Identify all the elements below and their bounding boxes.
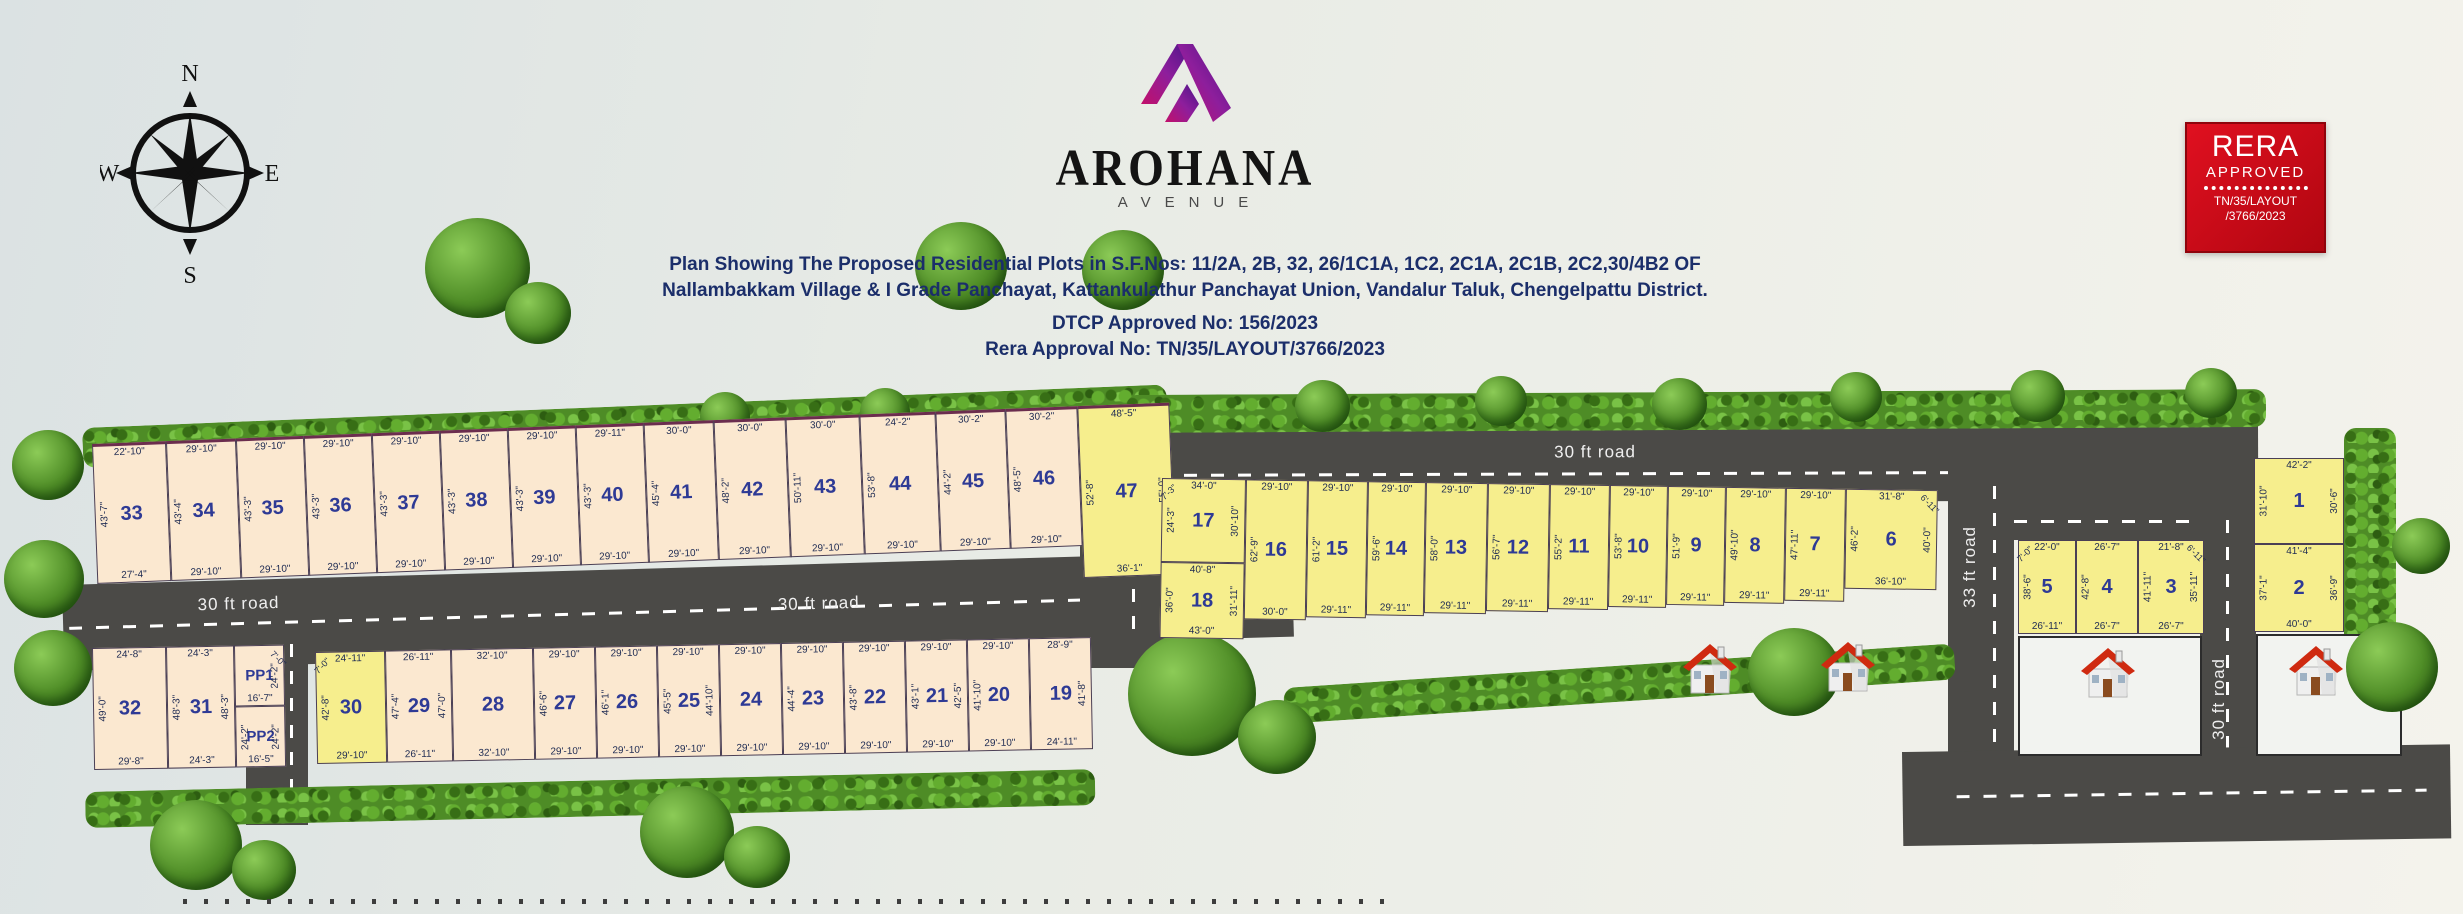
plot-number: 42 xyxy=(741,478,764,502)
plot-dim-top: 29'-10" xyxy=(658,646,718,658)
plot-dim-corner: 6'-11" xyxy=(1918,493,1941,516)
plot-dim-top: 24'-2" xyxy=(861,416,935,430)
plot: 24'-2" PP1 16'-7" 7'-0" xyxy=(234,645,285,707)
plot-dim-top: 41'-4" xyxy=(2255,546,2343,557)
dtcp-approval: DTCP Approved No: 156/2023 xyxy=(640,313,1730,335)
plan-title-line1: Plan Showing The Proposed Residential Pl… xyxy=(640,252,1730,278)
compass-w-label: W xyxy=(100,161,120,187)
plot-dim-bottom: 29'-10" xyxy=(722,742,782,754)
plot-dim-left: 53'-8" xyxy=(1613,533,1624,559)
plot-dim-left: 43'-7" xyxy=(99,502,111,528)
plot-dim-bottom: 29'-10" xyxy=(719,544,789,558)
plot-dim-top: 29'-10" xyxy=(1669,488,1725,500)
plot-dim-right: 40'-0" xyxy=(1921,527,1932,553)
plot-dim-bottom: 29'-11" xyxy=(1785,588,1843,600)
plot-number: 26 xyxy=(616,690,639,713)
plot-dim-bottom: 29'-11" xyxy=(1367,602,1423,614)
plot-dim-top: 29'-10" xyxy=(720,645,780,657)
plot: 41'-4" 37'-1" 36'-9" 2 40'-0" xyxy=(2254,544,2344,632)
plot: 29'-10" 55'-2" 11 29'-11" xyxy=(1548,484,1610,610)
plot-dim-left: 24'-3" xyxy=(1166,507,1177,533)
plot-dim-left: 62'-9" xyxy=(1249,537,1260,563)
plot-dim-top: 29'-10" xyxy=(782,644,842,656)
plot-dim-bottom: 32'-10" xyxy=(454,747,534,760)
plot-dim-right: 44'-10" xyxy=(704,685,716,716)
plot-dim-corner: 6'-11" xyxy=(2184,543,2207,566)
tree-icon xyxy=(1830,372,1882,422)
plot-dim-bottom: 29'-10" xyxy=(598,744,658,756)
plan-title-line2: Nallambakkam Village & I Grade Panchayat… xyxy=(640,278,1730,304)
plot-dim-left: 36'-0" xyxy=(1164,587,1175,613)
tree-icon xyxy=(1128,632,1256,756)
road-cross-right: 33 ft road xyxy=(1948,468,2014,788)
compass-n-label: N xyxy=(181,61,198,87)
plot: 30'-0" 45'-4" 41 29'-10" xyxy=(644,420,719,563)
plot-dim-left: 51'-9" xyxy=(1671,533,1682,559)
plot-dim-left: 61'-2" xyxy=(1311,536,1322,562)
plot-number: 1 xyxy=(2293,490,2304,513)
plot-number: 38 xyxy=(465,488,488,512)
plot: 24'-2" 53'-8" 44 29'-10" xyxy=(859,412,940,555)
plot: 30'-2" 48'-5" 46 29'-10" xyxy=(1005,406,1082,549)
plot-dim-bottom: 40'-0" xyxy=(2255,619,2343,630)
plot-block-5-4-3: 22'-0" 38'-6" 5 26'-11" 7'-0" 26'-7" 42'… xyxy=(2018,540,2204,634)
tree-icon xyxy=(640,786,734,878)
rera-approved-badge: RERA APPROVED TN/35/LAYOUT /3766/2023 xyxy=(2185,122,2326,253)
plot-dim-bottom: 29'-11" xyxy=(1307,604,1365,616)
plot-number: 12 xyxy=(1507,536,1530,559)
plot-number: 25 xyxy=(678,689,701,712)
plot-dim-top: 30'-2" xyxy=(1006,410,1076,424)
boundary-dotted-line xyxy=(183,899,1395,904)
tree-icon xyxy=(1295,380,1350,432)
plot-number: 3 xyxy=(2165,576,2176,599)
plot-dim-left: 41'-10" xyxy=(972,680,984,711)
road-dash xyxy=(2226,520,2229,782)
plot-dim-bottom: 16'-7" xyxy=(236,693,284,705)
plot-number: 36 xyxy=(329,494,352,518)
plot-dim-left: 37'-1" xyxy=(2259,575,2270,600)
plot: 24'-11" 42'-8" 30 29'-10" 7'-0" xyxy=(315,651,387,764)
plot-dim-left: 47'-11" xyxy=(1789,529,1800,559)
road-dash xyxy=(1957,789,2427,799)
tree-icon xyxy=(2010,370,2065,422)
plot: 29'-10" 43'-3" 37 29'-10" xyxy=(372,431,445,574)
road-right-vertical: 30 ft road xyxy=(2200,468,2256,788)
plot-dim-top: 29'-10" xyxy=(167,443,235,457)
hedge-bottom xyxy=(85,769,1096,828)
plot: 29'-10" 43'-4" 34 29'-10" xyxy=(166,438,241,581)
plot-number: 28 xyxy=(482,693,505,716)
plot: 34'-0" 24'-3" 30'-10" 17 7'-3" xyxy=(1161,478,1246,563)
plot-dim-top: 29'-10" xyxy=(237,440,303,454)
plot: 29'-10" 61'-2" 15 29'-11" xyxy=(1306,480,1368,618)
plot-dim-bottom: 29'-11" xyxy=(1425,600,1485,612)
plot-number: 39 xyxy=(533,486,556,510)
plot-dim-left: 49'-10" xyxy=(1729,529,1740,560)
plot-dim-left: 42'-8" xyxy=(2081,574,2092,599)
plot-dim-left: 45'-5" xyxy=(662,688,673,714)
plot: 29'-10" 43'-3" 36 29'-10" xyxy=(304,433,377,576)
plot-dim-bottom: 29'-10" xyxy=(242,563,308,577)
plot-dim-bottom: 29'-11" xyxy=(1487,598,1547,610)
plot-number: 2 xyxy=(2293,577,2304,600)
plot-dim-left: 46'-1" xyxy=(600,690,611,716)
plot-dim-left: 43'-3" xyxy=(514,486,526,512)
plot: 29'-10" 47'-11" 7 29'-11" xyxy=(1784,488,1846,602)
plot: 22'-0" 38'-6" 5 26'-11" 7'-0" xyxy=(2018,540,2076,634)
badge-title: RERA xyxy=(2187,130,2324,164)
plot-dim-right: 36'-9" xyxy=(2329,575,2340,600)
plot: 42'-2" 31'-10" 30'-6" 1 xyxy=(2254,458,2344,544)
plot-dim-top: 26'-7" xyxy=(2077,542,2137,553)
plot: 31'-8" 46'-2" 40'-0" 6 36'-10" 6'-11" xyxy=(1844,489,1938,590)
plot-dim-top: 29'-10" xyxy=(1489,485,1549,497)
road-bottom-right xyxy=(1902,744,2451,846)
tree-icon xyxy=(505,282,571,344)
road-dash xyxy=(1993,486,1996,778)
plot-dim-top: 30'-0" xyxy=(787,419,859,433)
plot-dim-left: 47'-4" xyxy=(390,694,401,720)
plot-dim-left: 43'-4" xyxy=(173,499,185,525)
plot-number: 47 xyxy=(1115,479,1138,503)
logo-title: AROHANA xyxy=(1030,141,1340,195)
badge-subtitle: APPROVED xyxy=(2187,164,2324,181)
plot-number: 5 xyxy=(2041,576,2052,599)
plot-dim-bottom: 29'-8" xyxy=(95,756,167,768)
plot-dim-bottom: 16'-5" xyxy=(237,754,285,766)
plot: 29'-10" 46'-1" 26 29'-10" xyxy=(595,645,659,758)
plot-dim-bottom: 29'-10" xyxy=(846,740,906,752)
plot-number: 31 xyxy=(190,695,213,718)
plot-dim-top: 29'-11" xyxy=(577,427,643,441)
plot: 29'-10" 46'-6" 27 29'-10" xyxy=(533,647,597,760)
logo-subtitle: AVENUE xyxy=(1030,194,1340,211)
road-label: 30 ft road xyxy=(197,593,279,615)
plot: 28'-9" 41'-8" 19 24'-11" xyxy=(1029,637,1093,750)
plot-dim-bottom: 29'-10" xyxy=(941,536,1009,550)
tree-icon xyxy=(2185,368,2237,418)
plot-dim-left: 44'-4" xyxy=(786,686,797,712)
plot-dim-top: 28'-9" xyxy=(1030,639,1090,651)
plot-number: 13 xyxy=(1445,536,1468,559)
plot-dim-bottom: 29'-10" xyxy=(660,743,720,755)
plot: 29'-10" 49'-10" 8 29'-11" xyxy=(1724,487,1786,604)
plot-number: 4 xyxy=(2101,576,2112,599)
plot-dim-bottom: 26'-11" xyxy=(2019,621,2075,632)
plot-number: 21 xyxy=(926,684,949,707)
plot-number: 27 xyxy=(554,691,577,714)
plot: 24'-2" 24'-2" PP2 16'-5" xyxy=(235,706,286,768)
plot-block-1-2: 42'-2" 31'-10" 30'-6" 1 41'-4" 37'-1" 36… xyxy=(2254,458,2344,632)
plot-dim-right: 24'-2" xyxy=(270,723,281,749)
badge-ref2: /3766/2023 xyxy=(2187,209,2324,224)
plot-row-32-31: 24'-8" 49'-0" 32 29'-8" 24'-3" 48'-3" 48… xyxy=(92,646,236,770)
plot-dim-top: 48'-5" xyxy=(1078,407,1168,421)
plot-dim-top: 26'-11" xyxy=(386,651,450,663)
plot-dim-top: 40'-8" xyxy=(1161,564,1243,576)
plot-dim-top: 29'-10" xyxy=(1247,481,1307,493)
plot-number: 23 xyxy=(802,687,825,710)
plot-dim-top: 29'-10" xyxy=(1309,482,1367,494)
plot-dim-top: 29'-10" xyxy=(1369,483,1425,495)
plot-dim-top: 32'-10" xyxy=(452,650,532,663)
plot-dim-left: 49'-0" xyxy=(97,696,108,722)
tree-icon xyxy=(1238,700,1316,774)
logo-mark-icon xyxy=(1135,26,1235,144)
plot-block-mid-right: 34'-0" 24'-3" 30'-10" 17 7'-3" 40'-8" 36… xyxy=(1159,478,1937,650)
plot-dim-top: 29'-10" xyxy=(1611,487,1667,499)
plot-number: 41 xyxy=(670,480,693,504)
plot-dim-left: 46'-6" xyxy=(538,691,549,717)
plot-dim-left: 43'-3" xyxy=(446,488,458,514)
plot-dim-bottom: 26'-7" xyxy=(2077,621,2137,632)
plot-dim-left: 59'-6" xyxy=(1371,536,1382,562)
plot: 30'-0" 48'-2" 42 29'-10" xyxy=(714,417,791,560)
plot-dim-left: 50'-11" xyxy=(792,473,804,504)
plot-dim-left: 24'-2" xyxy=(240,724,251,750)
plot-number: 9 xyxy=(1690,534,1701,557)
plot-dim-left: 43'-1" xyxy=(910,684,921,710)
plot-dim-bottom: 29'-11" xyxy=(1667,592,1723,604)
plot-number: 8 xyxy=(1749,534,1760,557)
plot: 29'-10" 53'-8" 10 29'-11" xyxy=(1608,485,1668,608)
plot-number: 15 xyxy=(1326,538,1349,561)
plot-dim-right: 30'-6" xyxy=(2329,488,2340,513)
tree-icon xyxy=(232,840,296,900)
house-icon xyxy=(1678,640,1742,698)
plot: 21'-8" 41'-11" 35'-11" 3 26'-7" 6'-11" xyxy=(2138,540,2204,634)
plot-dim-top: 29'-10" xyxy=(305,437,371,451)
plot-dim-top: 29'-10" xyxy=(906,642,966,654)
plot-dim-left: 43'-3" xyxy=(243,496,255,522)
plot-dim-bottom: 29'-10" xyxy=(865,539,939,553)
plot-dim-right: 30'-10" xyxy=(1230,506,1241,537)
plot-dim-bottom: 29'-10" xyxy=(514,552,580,566)
plot: 29'-10" 24 29'-10" xyxy=(719,643,783,756)
plot-dim-top: 29'-10" xyxy=(1787,490,1845,502)
plot-dim-bottom: 36'-10" xyxy=(1845,576,1935,588)
plot-number: 32 xyxy=(119,697,142,720)
tree-icon xyxy=(12,430,84,500)
plot: 29'-10" 43'-1" 42'-5" 21 29'-10" xyxy=(905,639,969,752)
plot-dim-right: 41'-8" xyxy=(1076,680,1087,706)
road-label: 33 ft road xyxy=(1960,526,1980,608)
plot-number: 34 xyxy=(192,499,215,523)
plot-dim-top: 29'-10" xyxy=(373,435,439,449)
plot-number: 45 xyxy=(962,469,985,493)
plot-number: 22 xyxy=(864,686,887,709)
plot-number: 33 xyxy=(120,502,143,526)
plot-row-16-6: 29'-10" 62'-9" 16 30'-0" 29'-10" 61'-2" … xyxy=(1244,479,1938,630)
plot-number: 11 xyxy=(1568,535,1590,558)
plot-dim-bottom: 26'-11" xyxy=(388,748,452,760)
compass-s-label: S xyxy=(183,263,196,289)
road-label: 30 ft road xyxy=(778,593,860,615)
plot-dim-top: 30'-0" xyxy=(715,421,785,435)
plot: 30'-0" 50'-11" 43 29'-10" xyxy=(785,415,864,558)
plot-dim-left: 44'-2" xyxy=(942,469,954,495)
plot-dim-bottom: 29'-10" xyxy=(582,550,648,564)
plot: 29'-11" 43'-3" 40 29'-10" xyxy=(576,423,649,566)
plot-number: 17 xyxy=(1192,509,1215,532)
badge-ref1: TN/35/LAYOUT xyxy=(2187,194,2324,209)
plot-number: 16 xyxy=(1265,538,1288,561)
plot-dim-left: 31'-10" xyxy=(2259,485,2270,516)
plot-number: 44 xyxy=(889,472,912,496)
plot-dim-top: 30'-0" xyxy=(645,424,713,438)
plot-dim-bottom: 29'-10" xyxy=(310,560,376,574)
tree-icon xyxy=(1652,378,1707,430)
plot-dim-bottom: 29'-10" xyxy=(970,737,1030,749)
plot-number: 6 xyxy=(1885,528,1896,551)
plot-col-17-18: 34'-0" 24'-3" 30'-10" 17 7'-3" 40'-8" 36… xyxy=(1159,478,1246,639)
plot-dim-top: 42'-2" xyxy=(2255,460,2343,471)
plot: 29'-10" 51'-9" 9 29'-11" xyxy=(1666,486,1726,606)
plot-dim-bottom: 29'-11" xyxy=(1725,590,1783,602)
plot-number: 40 xyxy=(601,483,624,507)
plan-title: Plan Showing The Proposed Residential Pl… xyxy=(640,252,1730,361)
plot: 29'-10" 43'-3" 38 29'-10" xyxy=(440,428,513,571)
plot-dim-top: 29'-10" xyxy=(1551,486,1609,498)
plot-dim-left: 55'-2" xyxy=(1553,534,1564,560)
plot: 22'-10" 43'-7" 33 27'-4" xyxy=(92,441,171,584)
road-fill-above-543 xyxy=(2014,468,2200,540)
plot-dim-bottom: 29'-10" xyxy=(318,750,386,762)
logo: AROHANA AVENUE xyxy=(1030,26,1340,211)
plot-dim-left: 43'-3" xyxy=(311,493,323,519)
plot-block-bottom-left: 24'-8" 49'-0" 32 29'-8" 24'-3" 48'-3" 48… xyxy=(92,645,286,770)
plot-dim-left: 45'-4" xyxy=(650,480,662,506)
tree-icon xyxy=(2392,518,2450,574)
plot: 32'-10" 28 32'-10" xyxy=(451,648,535,762)
plot-number: 24 xyxy=(740,688,763,711)
plot-dim-bottom: 29'-10" xyxy=(446,555,512,569)
plot-number: 46 xyxy=(1032,467,1055,491)
plot-dim-bottom: 29'-10" xyxy=(1011,533,1081,547)
plot-dim-left: 53'-8" xyxy=(866,472,878,498)
plot: 29'-10" 43'-3" 35 29'-10" xyxy=(236,436,309,579)
plot-dim-bottom: 29'-10" xyxy=(908,738,968,750)
plot-dim-left: 52'-8" xyxy=(1085,480,1097,506)
plot-dim-left: 58'-0" xyxy=(1429,535,1440,561)
plot-dim-top: 29'-10" xyxy=(844,643,904,655)
tree-icon xyxy=(2346,622,2438,712)
plot-dim-left: 48'-2" xyxy=(720,478,732,504)
plot-number: 7 xyxy=(1809,533,1820,556)
plot: 26'-11" 47'-4" 47'-0" 29 26'-11" xyxy=(385,649,453,762)
plot-dim-bottom: 24'-11" xyxy=(1032,736,1092,748)
plot-number: 18 xyxy=(1191,589,1214,612)
plot-dim-bottom: 26'-7" xyxy=(2139,621,2203,632)
plot: 24'-3" 48'-3" 48'-3" 31 24'-3" xyxy=(166,646,236,769)
house-icon xyxy=(2284,642,2348,700)
plot-dim-top: 30'-2" xyxy=(937,413,1005,427)
plot-dim-top: 24'-8" xyxy=(93,649,165,661)
plot-number: 37 xyxy=(397,491,420,515)
plot: 29'-10" 43'-3" 39 29'-10" xyxy=(508,425,581,568)
plot-dim-left: 43'-3" xyxy=(582,483,594,509)
compass-rose-icon: N S W E xyxy=(100,55,280,295)
tree-icon xyxy=(4,540,84,618)
plot-dim-bottom: 29'-10" xyxy=(791,541,863,555)
plot-number: 19 xyxy=(1050,682,1073,705)
tree-icon xyxy=(150,800,242,890)
rera-approval: Rera Approval No: TN/35/LAYOUT/3766/2023 xyxy=(640,339,1730,361)
tree-icon xyxy=(1475,376,1527,426)
plot-dim-bottom: 43'-0" xyxy=(1161,625,1243,637)
plot-dim-right: 31'-11" xyxy=(1228,586,1239,616)
compass-e-label: E xyxy=(265,161,280,187)
plot-dim-top: 29'-10" xyxy=(441,432,507,446)
plot-dim-top: 29'-10" xyxy=(968,640,1028,652)
house-icon xyxy=(1816,638,1880,696)
plot: 40'-8" 36'-0" 31'-11" 18 43'-0" xyxy=(1159,562,1244,639)
plot: 29'-10" 44'-4" 23 29'-10" xyxy=(781,642,845,755)
plot: 29'-10" 62'-9" 16 30'-0" xyxy=(1244,479,1308,620)
tree-icon xyxy=(14,630,92,706)
plot: 24'-8" 49'-0" 32 29'-8" xyxy=(92,647,168,770)
plot-dim-left: 56'-7" xyxy=(1491,534,1502,560)
plot-dim-bottom: 30'-0" xyxy=(1245,606,1305,618)
plot-dim-bottom: 29'-10" xyxy=(784,741,844,753)
plot-number: 29 xyxy=(408,694,431,717)
plot: 29'-10" 45'-5" 44'-10" 25 29'-10" xyxy=(657,644,721,757)
plot-dim-left: 43'-3" xyxy=(379,491,391,517)
plot-dim-left: 48'-5" xyxy=(1012,467,1024,493)
plot-dim-top: 24'-3" xyxy=(167,648,233,660)
plot-dim-bottom: 29'-10" xyxy=(536,746,596,758)
plot-number: 10 xyxy=(1627,535,1650,558)
plot-dim-bottom: 29'-10" xyxy=(378,558,444,572)
plot-dim-right: 42'-5" xyxy=(952,683,963,709)
plot-dim-bottom: 29'-11" xyxy=(1609,594,1665,606)
plot: 30'-2" 44'-2" 45 29'-10" xyxy=(935,409,1010,552)
plot-dim-right: 47'-0" xyxy=(436,693,447,719)
plot-block-bottom-mid: 24'-11" 42'-8" 30 29'-10" 7'-0" 26'-11" … xyxy=(315,637,1093,764)
plot-dim-top: 29'-10" xyxy=(1427,484,1487,496)
plot-dim-bottom: 29'-10" xyxy=(172,565,240,579)
road-dash xyxy=(2014,520,2200,523)
plot: 26'-7" 42'-8" 4 26'-7" xyxy=(2076,540,2138,634)
tree-icon xyxy=(724,826,790,888)
plot: 29'-10" 58'-0" 13 29'-11" xyxy=(1424,482,1488,614)
plot-dim-top: 29'-10" xyxy=(596,647,656,659)
badge-divider xyxy=(2204,186,2308,190)
plot-col-pp: 24'-2" PP1 16'-7" 7'-0" 24'-2" 24'-2" PP… xyxy=(234,645,286,768)
road-label: 30 ft road xyxy=(1554,442,1636,462)
plot-number: 30 xyxy=(340,696,363,719)
plot-dim-right: 35'-11" xyxy=(2189,572,2200,602)
plot-dim-top: 29'-10" xyxy=(534,649,594,661)
house-icon xyxy=(2076,644,2140,702)
plot-dim-left: 41'-11" xyxy=(2143,572,2154,602)
plot-dim-left: 42'-8" xyxy=(320,695,331,721)
plot-number: 20 xyxy=(988,683,1011,706)
plot: 29'-10" 41'-10" 20 29'-10" xyxy=(967,638,1031,751)
plot-dim-bottom: 29'-10" xyxy=(649,547,717,561)
plot-dim-right: 48'-3" xyxy=(219,694,230,720)
plot-dim-bottom: 29'-11" xyxy=(1549,596,1607,608)
plot-dim-left: 48'-3" xyxy=(171,695,182,721)
plot: 29'-10" 59'-6" 14 29'-11" xyxy=(1366,481,1426,616)
plot-number: 43 xyxy=(814,475,837,499)
plot-dim-left: 38'-6" xyxy=(2023,574,2034,599)
plot-number: 35 xyxy=(261,496,284,520)
plot-dim-left: 43'-8" xyxy=(848,685,859,711)
plot-dim-top: 22'-10" xyxy=(93,445,165,459)
plot-dim-top: 29'-10" xyxy=(1727,489,1785,501)
